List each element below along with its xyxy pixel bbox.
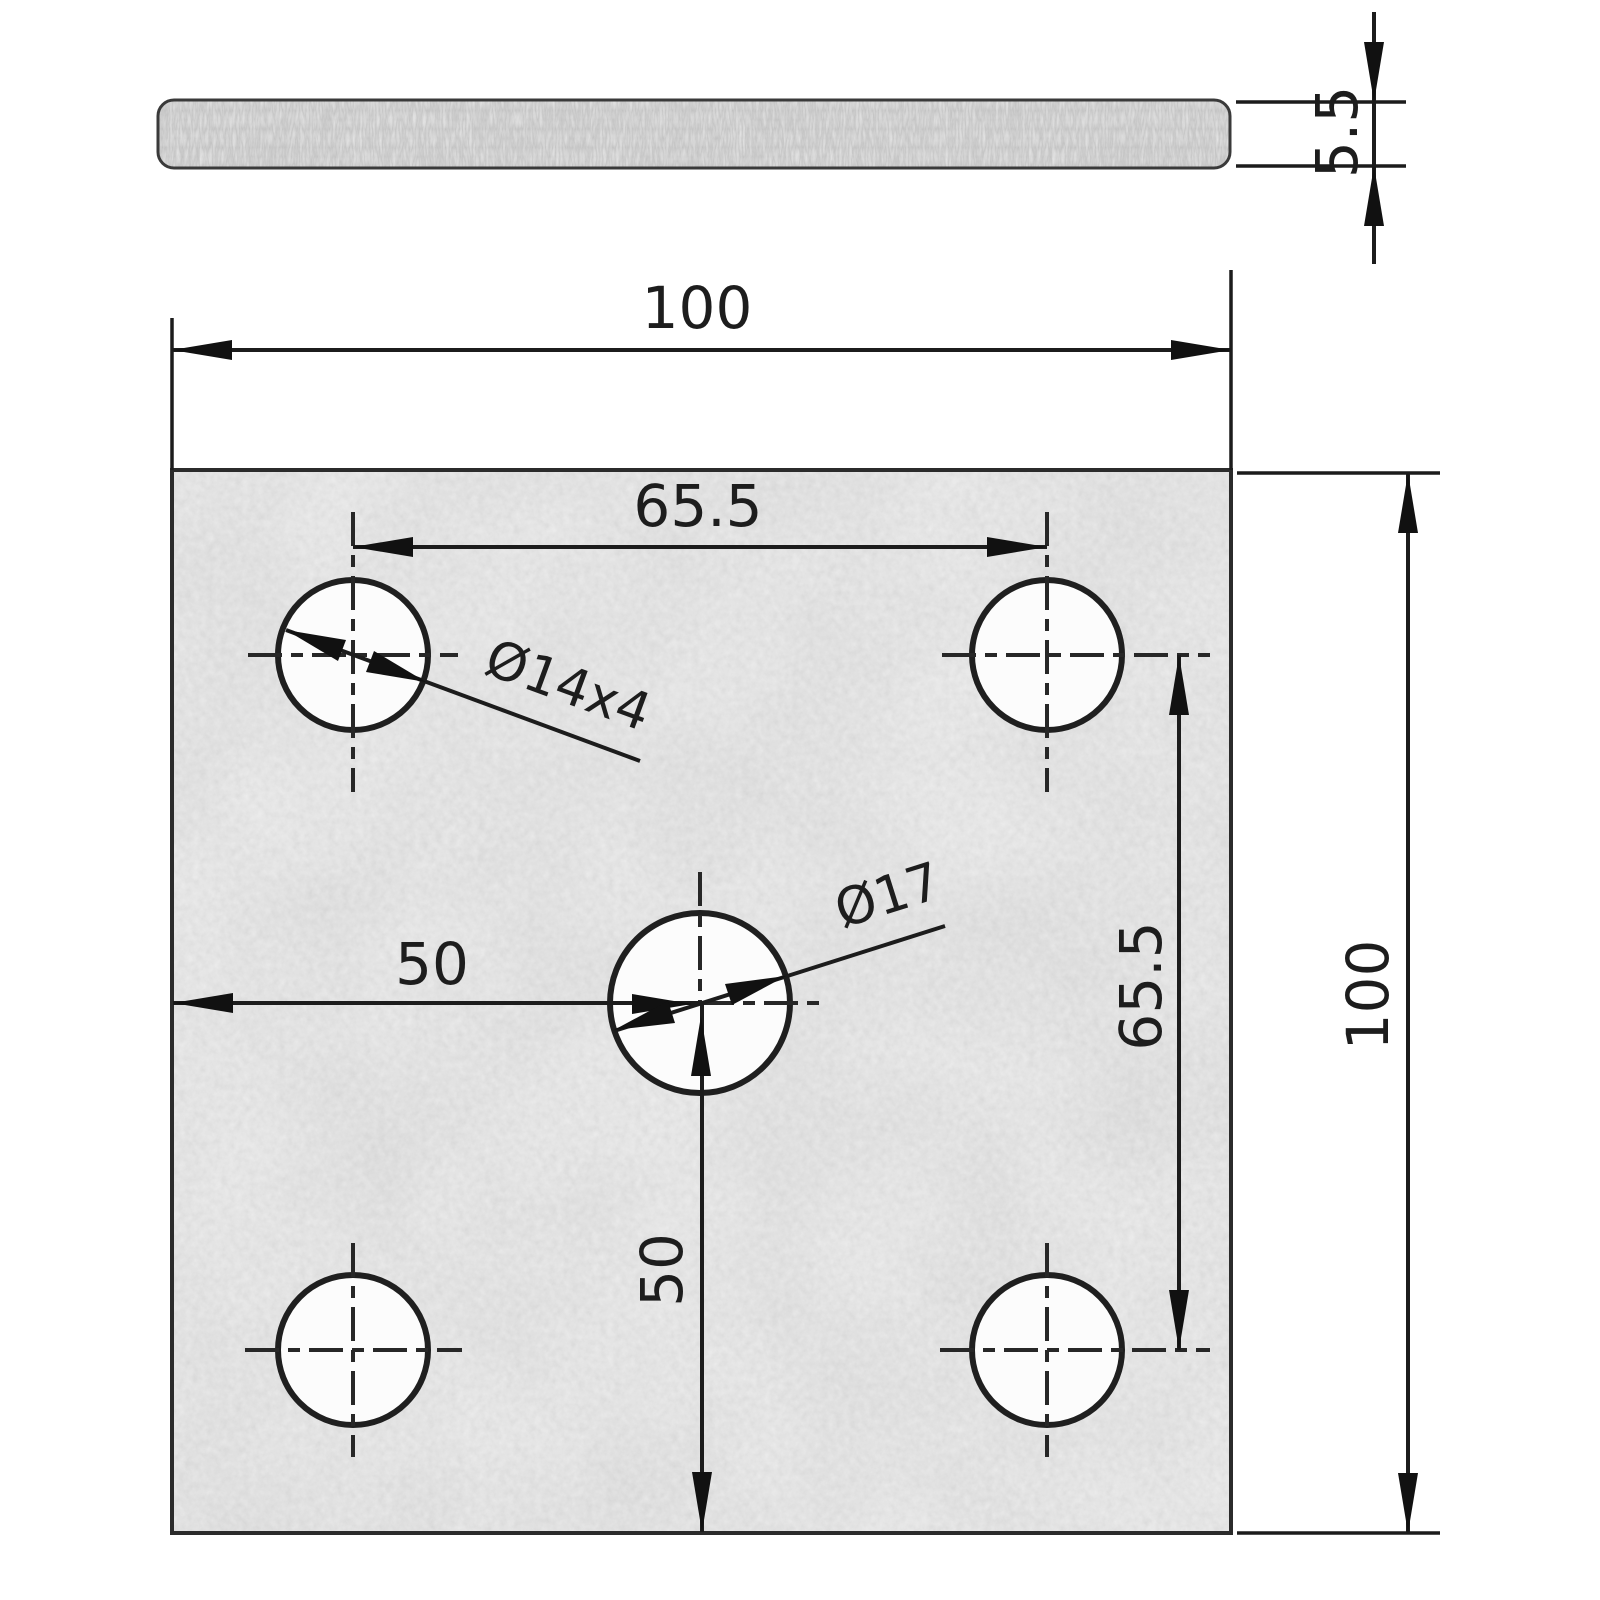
hole-span-x-label: 65.5 <box>633 472 762 540</box>
edge-view-plate-section <box>158 100 1230 168</box>
center-offset-y-label: 50 <box>628 1233 696 1307</box>
thickness-dimension-label: 5.5 <box>1303 86 1371 178</box>
technical-drawing-canvas: 5.5 <box>0 0 1600 1600</box>
arrowhead <box>1398 473 1418 533</box>
center-offset-x-label: 50 <box>395 930 469 998</box>
arrowhead <box>1171 340 1231 360</box>
thickness-dimension: 5.5 <box>1236 12 1406 264</box>
width-dimension: 100 <box>172 270 1231 470</box>
hole-span-y-label: 65.5 <box>1107 921 1175 1050</box>
height-dimension: 100 <box>1237 473 1440 1533</box>
width-dimension-label: 100 <box>642 274 753 342</box>
arrowhead <box>1398 1473 1418 1533</box>
arrowhead <box>172 340 232 360</box>
edge-view: 5.5 <box>158 12 1406 264</box>
drawing-page: 5.5 <box>0 0 1600 1600</box>
height-dimension-label: 100 <box>1334 940 1402 1051</box>
plan-view: 100 65.5 100 65.5 <box>172 270 1440 1533</box>
